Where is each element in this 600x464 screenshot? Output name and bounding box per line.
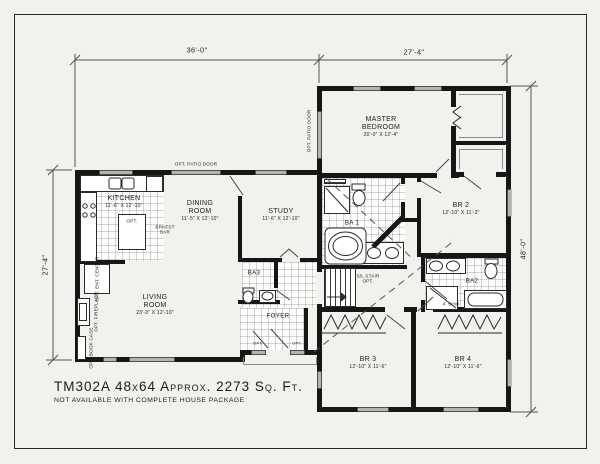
opt-patio-door-side-label: OPT. PATIO DOOR [307,110,312,153]
room-label-br3: BR 3 12'-10" X 11'-6" [336,356,400,370]
dimension-right-wing-width: 27'-4" [404,48,425,57]
room-label-foyer: FOYER [267,314,290,321]
room-label-dining: DINING ROOM 11'-5" X 12'-10" [177,200,223,222]
plan-title: TM302A 48x64 Approx. 2273 Sq. Ft. [54,379,303,394]
opt-front-window-label: OPT. [253,342,263,347]
room-label-master: MASTER BEDROOM 20'-0" X 12'-4" [352,116,410,138]
plan-note: NOT AVAILABLE WITH COMPLETE HOUSE PACKAG… [54,397,303,404]
opt-patio-door-label: OPT. PATIO DOOR [175,161,218,166]
title-block: TM302A 48x64 Approx. 2273 Sq. Ft. NOT AV… [54,379,303,404]
room-label-ba3: BA3 [248,271,261,278]
room-label-living: LIVING ROOM 23'-3" X 12'-10" [133,294,177,316]
stair-direction-arrow [327,293,346,301]
brkfst-bar-label: BRKFST BAR [150,225,180,236]
stair-option-label: S/L STAIR OPT. [356,274,380,285]
room-label-ba1: BA 1 [345,221,359,228]
room-label-br4: BR 4 12'-10" X 11'-6" [431,356,495,370]
shower-size-label: 4' SHW [443,301,460,306]
opt-island-label: OPT. [126,218,137,223]
room-label-br2: BR 2 12'-10" X 11'-3" [429,202,493,216]
dimension-left-wing-depth: 27'-4" [41,255,50,276]
room-label-ba2: BA2 [466,279,479,286]
floor-plan-sheet: KITCHEN 11'-6" X 12'-10" DINING ROOM 11'… [0,0,600,464]
dimension-left-wing-width: 36'-0" [187,46,208,55]
angled-wall [373,217,403,247]
opt-book-case-label: OPT. BOOK CASE [89,327,94,368]
room-label-kitchen: KITCHEN 11'-6" X 12'-10" [89,195,159,209]
room-label-study: STUDY 11'-6" X 12'-10" [251,208,311,222]
dimension-right-wing-depth: 48'-0" [519,239,528,260]
opt-front-window-label: OPT. [292,342,302,347]
opt-fireplace-label: OPT. FIREPLACE [94,292,99,332]
